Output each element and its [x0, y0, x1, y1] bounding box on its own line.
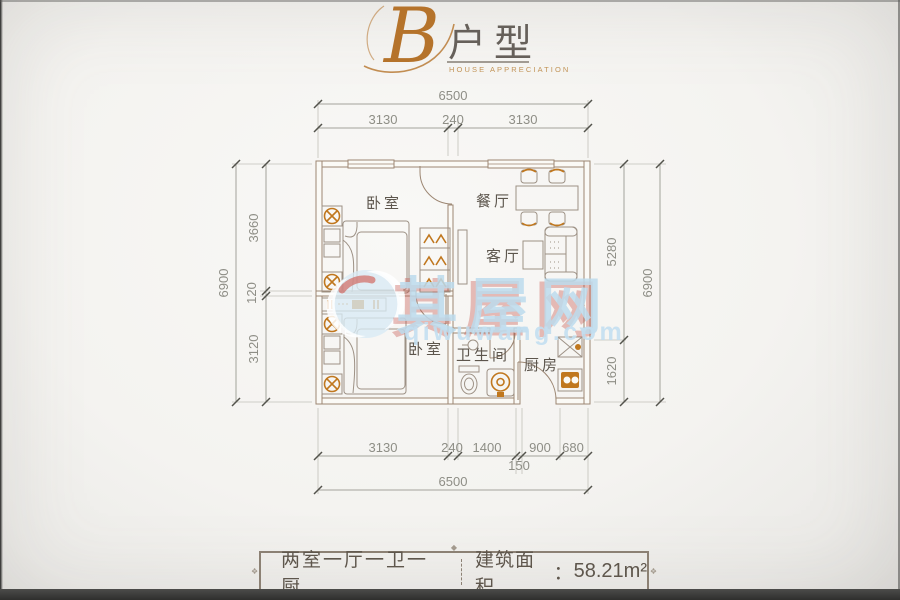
dim-top-a: 3130 [369, 112, 398, 127]
window-dining [488, 160, 554, 168]
area-value: 58.21m² [574, 560, 647, 583]
stove-icon [558, 369, 582, 391]
dim-top-b: 240 [442, 112, 464, 127]
dim-left-total: 6900 [216, 269, 231, 298]
photo-edge [0, 589, 900, 600]
nightstand-icon [322, 206, 342, 226]
sofa-icon [545, 227, 577, 281]
cabinet-strip-icon [322, 298, 386, 311]
dim-bot-total: 6500 [439, 474, 468, 489]
ornament-icon: ❖ [251, 568, 258, 576]
coffee-table-icon [523, 241, 543, 269]
ornament-icon: ◆ [451, 544, 457, 552]
chair-icon [549, 170, 565, 184]
kitchen-furniture [558, 337, 582, 391]
chair-icon [521, 170, 537, 184]
room-label-bedroom2: 卧室 [408, 341, 444, 358]
wardrobe-icon [420, 228, 450, 292]
dining-furniture [516, 170, 578, 226]
door-bedroom1 [420, 166, 452, 204]
dim-right-b: 1620 [604, 357, 619, 386]
dim-bot-inset: 150 [508, 458, 530, 473]
chair-icon [521, 212, 537, 226]
room-label-dining: 餐厅 [476, 193, 512, 210]
dim-bot-e: 680 [562, 440, 584, 455]
chair-icon [549, 212, 565, 226]
washing-machine-icon [487, 369, 514, 397]
room-label-bathroom: 卫生间 [456, 347, 510, 364]
dim-left-a: 3660 [246, 214, 261, 243]
nightstand-icon [322, 272, 342, 292]
dim-right-total: 6900 [640, 269, 655, 298]
sink-icon [558, 337, 582, 357]
photo-edge [0, 0, 900, 2]
bedroom1-furniture [322, 206, 450, 293]
nightstand-icon [322, 374, 342, 394]
title-underline [447, 61, 529, 63]
header-letter: B [382, 0, 440, 80]
dim-bot-a: 3130 [369, 440, 398, 455]
dim-bot-b: 240 [441, 440, 463, 455]
ornament-icon: ❖ [650, 568, 657, 576]
info-box: ◆ ◆ ❖ ❖ 两室一厅一卫一厨 建筑面积 ： 58.21m² [259, 551, 649, 592]
bedroom2-furniture [322, 298, 406, 394]
room-label-living: 客厅 [486, 248, 522, 265]
floorplan-drawing: 6500 3130 240 3130 3130 240 1400 900 680… [0, 0, 900, 600]
page-subtitle: HOUSE APPRECIATION [449, 65, 570, 74]
door-bedroom2 [416, 294, 446, 324]
dim-right-a: 5280 [604, 238, 619, 267]
room-label-bedroom1: 卧室 [366, 195, 402, 212]
dim-bot-d: 900 [529, 440, 551, 455]
bed-icon [344, 318, 406, 394]
toilet-icon [459, 366, 479, 394]
dim-bot-c: 1400 [473, 440, 502, 455]
tv-stand-icon [458, 230, 467, 284]
floorplan-photo: 6500 3130 240 3130 3130 240 1400 900 680… [0, 0, 900, 600]
room-label-kitchen: 厨房 [524, 357, 560, 374]
bed-icon [343, 221, 409, 293]
dim-top-c: 3130 [509, 112, 538, 127]
divider [461, 559, 462, 585]
window-bedroom1 [348, 160, 394, 168]
dim-top-total: 6500 [439, 88, 468, 103]
dining-table-icon [516, 186, 578, 210]
page-title: 户型 [448, 12, 540, 67]
area-colon: ： [554, 558, 574, 585]
dim-left-b: 120 [244, 282, 259, 304]
nightstand-icon [322, 314, 342, 334]
photo-edge [0, 0, 3, 600]
dim-left-c: 3120 [246, 335, 261, 364]
